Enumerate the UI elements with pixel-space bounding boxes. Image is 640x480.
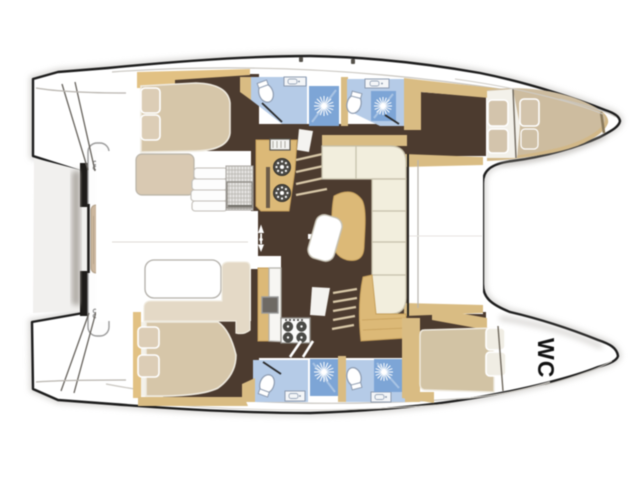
svg-text:WC: WC <box>533 338 559 378</box>
